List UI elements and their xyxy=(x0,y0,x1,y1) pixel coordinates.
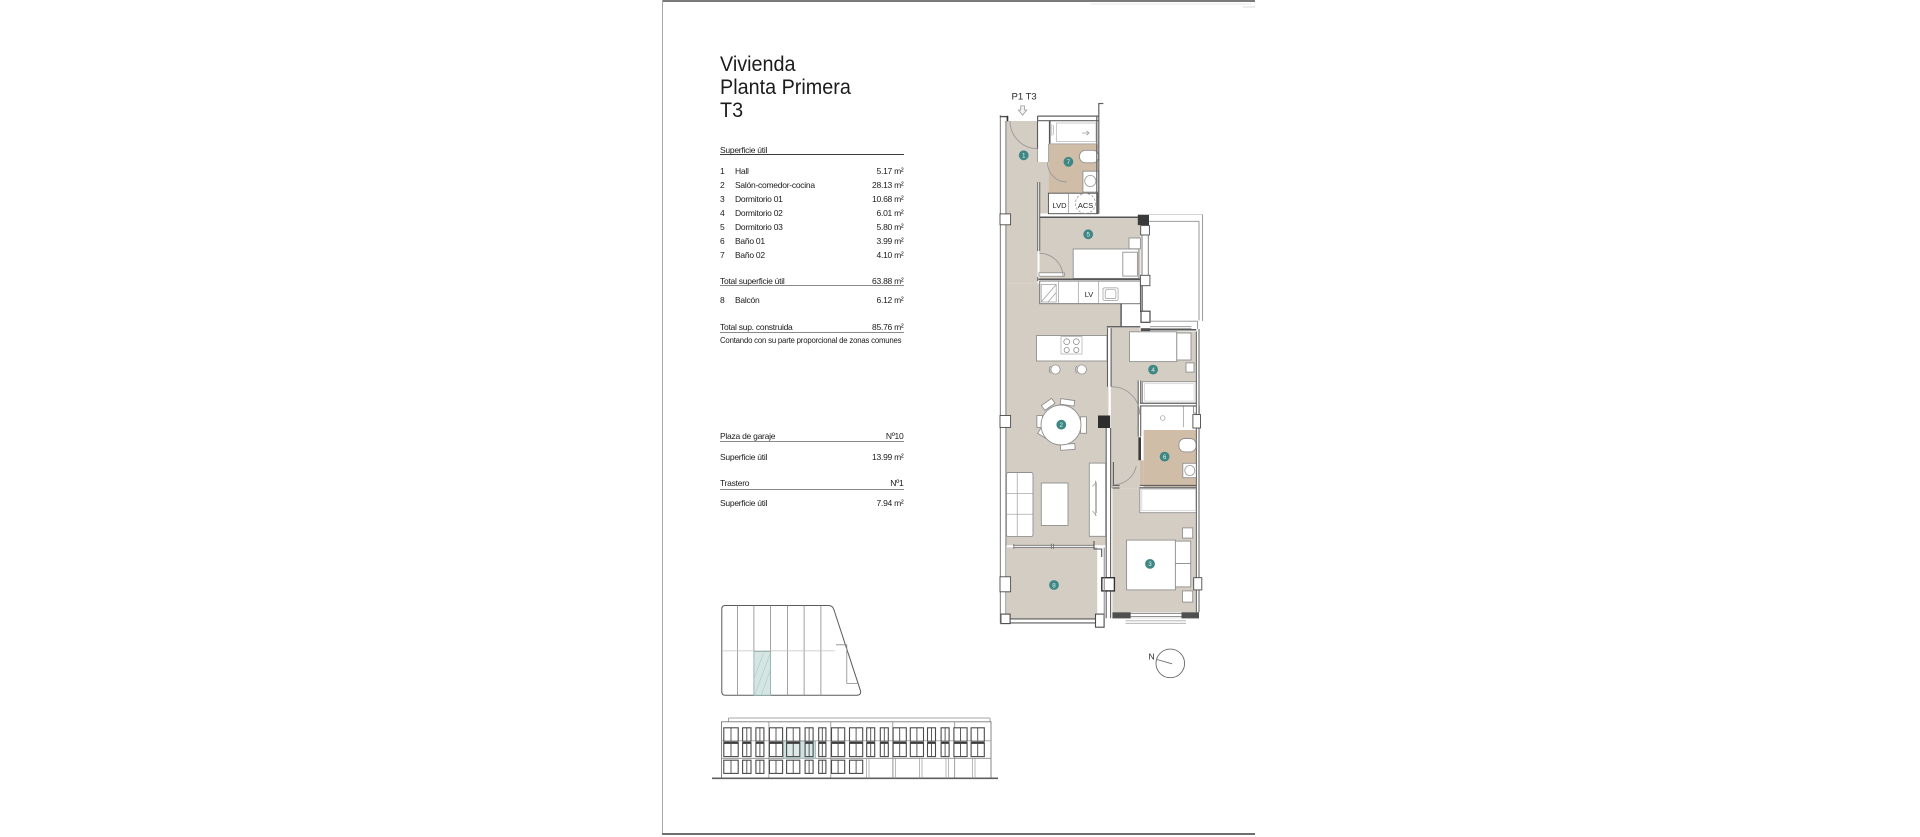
svg-text:1: 1 xyxy=(1022,153,1026,160)
svg-text:6: 6 xyxy=(1163,454,1167,461)
svg-text:8: 8 xyxy=(1052,582,1056,589)
svg-text:LVD: LVD xyxy=(1052,201,1067,210)
svg-text:3: 3 xyxy=(1148,561,1152,568)
svg-text:4: 4 xyxy=(1151,367,1155,374)
svg-text:P1 T3: P1 T3 xyxy=(1012,92,1037,103)
svg-text:N: N xyxy=(1149,652,1155,662)
svg-text:2: 2 xyxy=(1060,422,1064,429)
svg-text:7: 7 xyxy=(1067,159,1071,166)
svg-text:ACS: ACS xyxy=(1078,201,1093,210)
svg-text:LV: LV xyxy=(1085,290,1094,299)
svg-text:5: 5 xyxy=(1086,232,1090,239)
